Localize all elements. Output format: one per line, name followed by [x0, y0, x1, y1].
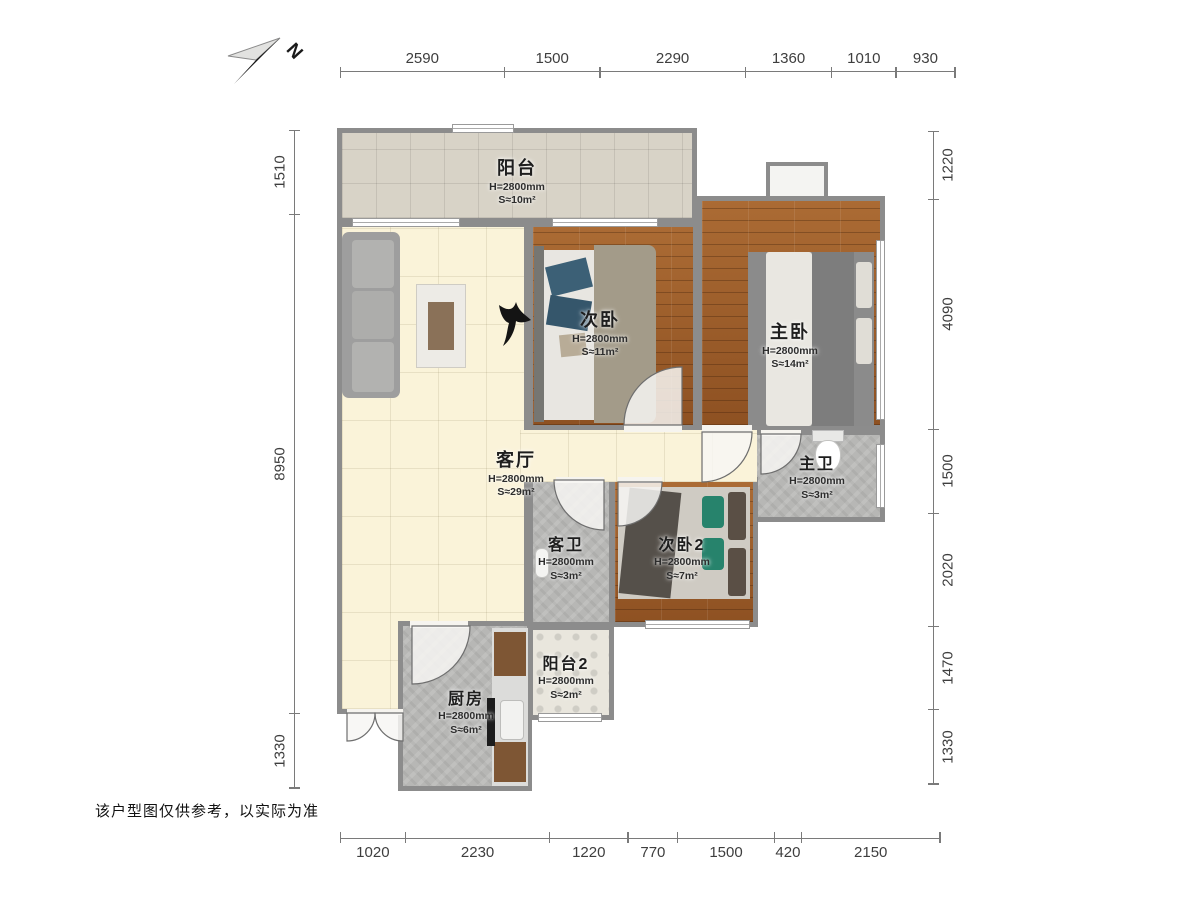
dim-segment: 1010	[832, 50, 896, 78]
label-master: 主卧 H=2800mm S≈14m²	[762, 322, 818, 371]
dim-segment: 4090	[928, 200, 956, 430]
dim-value: 1220	[572, 844, 605, 861]
plant-decor-icon	[498, 300, 532, 348]
room-name: 阳台	[489, 158, 545, 180]
dim-value: 1330	[272, 734, 289, 767]
room-area: S≈6m²	[438, 724, 494, 737]
dim-value: 2290	[656, 50, 689, 67]
dim-value: 770	[640, 844, 665, 861]
room-name: 客厅	[488, 450, 544, 472]
dim-segment: 2230	[406, 832, 550, 860]
bed3-pillow	[728, 492, 746, 540]
dim-value: 1330	[940, 730, 957, 763]
bed3-pillow	[728, 548, 746, 596]
disclaimer-text: 该户型图仅供参考，以实际为准	[95, 800, 319, 821]
dim-value: 930	[913, 50, 938, 67]
room-area: S≈3m²	[789, 489, 845, 502]
dim-value: 1360	[772, 50, 805, 67]
kitchen-sink	[500, 700, 524, 740]
window-balcony-top	[452, 124, 514, 133]
dim-value: 1500	[536, 50, 569, 67]
room-area: S≈29m²	[488, 486, 544, 499]
dim-segment: 1330	[928, 709, 956, 784]
room-area: S≈3m²	[538, 570, 594, 583]
room-height: H=2800mm	[489, 181, 545, 194]
room-area: S≈7m²	[654, 570, 710, 583]
dim-segment: 1470	[928, 627, 956, 710]
bed2-headboard	[534, 246, 544, 422]
dim-segment: 1500	[928, 429, 956, 513]
door-gap-bedroom3	[618, 477, 662, 483]
window-master-right	[876, 240, 885, 420]
room-name: 阳台2	[538, 655, 594, 674]
dim-value: 1470	[940, 651, 957, 684]
label-bedroom2: 次卧 H=2800mm S≈11m²	[572, 310, 628, 359]
room-height: H=2800mm	[488, 473, 544, 486]
bay-window	[766, 162, 828, 200]
room-height: H=2800mm	[538, 556, 594, 569]
door-gap-master	[702, 425, 752, 432]
sofa-cushion	[352, 240, 394, 288]
door-gap-guestbath	[556, 477, 604, 483]
coffee-table-top	[428, 302, 454, 350]
room-height: H=2800mm	[762, 345, 818, 358]
dim-value: 1500	[709, 844, 742, 861]
dim-value: 2150	[854, 844, 887, 861]
dim-segment: 1220	[928, 131, 956, 200]
dim-segment: 1360	[745, 50, 831, 78]
room-height: H=2800mm	[572, 333, 628, 346]
room-area: S≈10m²	[489, 194, 545, 207]
room-height: H=2800mm	[538, 675, 594, 688]
dim-value: 1010	[847, 50, 880, 67]
dim-value: 2590	[406, 50, 439, 67]
window-balcony-living	[352, 218, 460, 227]
bed3-pillow-teal	[702, 496, 724, 528]
north-label: N	[282, 39, 307, 63]
dim-value: 1020	[356, 844, 389, 861]
dim-value: 8950	[272, 447, 289, 480]
room-name: 主卧	[762, 322, 818, 344]
room-height: H=2800mm	[789, 475, 845, 488]
sofa-cushion	[352, 291, 394, 339]
dim-segment: 1500	[505, 50, 600, 78]
dim-value: 2020	[940, 553, 957, 586]
dim-segment: 2290	[600, 50, 745, 78]
kitchen-cabinet	[494, 742, 526, 782]
dimension-line-left: 151089501330	[272, 130, 300, 788]
master-bed-pillow	[856, 318, 872, 364]
dim-segment: 2590	[340, 50, 505, 78]
window-balcony2-bottom	[538, 713, 602, 722]
label-master-bath: 主卫 H=2800mm S≈3m²	[789, 455, 845, 501]
window-bedroom3-bottom	[645, 620, 750, 629]
room-name: 客卫	[538, 536, 594, 555]
dim-segment: 420	[774, 832, 801, 860]
room-area: S≈11m²	[572, 346, 628, 359]
floorplan-canvas: N 25901500229013601010930 10202230122077…	[0, 0, 1200, 900]
master-bed-pillow	[856, 262, 872, 308]
door-gap-entrance	[347, 709, 403, 715]
master-bed-blanket	[812, 252, 854, 426]
north-compass-icon: N	[218, 30, 314, 94]
dim-segment: 1330	[272, 714, 300, 788]
dim-value: 420	[775, 844, 800, 861]
label-guest-bath: 客卫 H=2800mm S≈3m²	[538, 536, 594, 582]
dim-segment: 1510	[272, 130, 300, 214]
door-entrance-left	[347, 713, 375, 741]
room-name: 厨房	[438, 690, 494, 709]
room-name: 主卫	[789, 455, 845, 474]
kitchen-cabinet	[494, 632, 526, 676]
room-height: H=2800mm	[438, 710, 494, 723]
room-area: S≈14m²	[762, 358, 818, 371]
window-masterbath-right	[876, 444, 885, 508]
dim-segment: 1220	[549, 832, 628, 860]
room-name: 次卧2	[654, 536, 710, 555]
label-balcony: 阳台 H=2800mm S≈10m²	[489, 158, 545, 207]
dim-value: 4090	[940, 298, 957, 331]
dim-segment: 8950	[272, 214, 300, 714]
dimension-line-right: 122040901500202014701330	[928, 131, 956, 784]
window-balcony-bedroom	[552, 218, 658, 227]
dim-segment: 2150	[801, 832, 940, 860]
dimension-line-bottom: 10202230122077015004202150	[340, 832, 940, 860]
door-gap-bedroom2	[624, 425, 682, 432]
door-gap-kitchen	[410, 621, 468, 628]
dim-value: 2230	[461, 844, 494, 861]
room-area: S≈2m²	[538, 689, 594, 702]
dim-value: 1500	[940, 455, 957, 488]
room-height: H=2800mm	[654, 556, 710, 569]
label-kitchen: 厨房 H=2800mm S≈6m²	[438, 690, 494, 736]
hallway	[520, 430, 757, 482]
label-living: 客厅 H=2800mm S≈29m²	[488, 450, 544, 499]
dim-value: 1220	[940, 149, 957, 182]
sofa-cushion	[352, 342, 394, 392]
dim-value: 1510	[272, 155, 289, 188]
label-bedroom3: 次卧2 H=2800mm S≈7m²	[654, 536, 710, 582]
dim-segment: 1500	[678, 832, 775, 860]
dim-segment: 930	[896, 50, 955, 78]
dimension-line-top: 25901500229013601010930	[340, 50, 955, 78]
dim-segment: 2020	[928, 513, 956, 626]
label-balcony2: 阳台2 H=2800mm S≈2m²	[538, 655, 594, 701]
dim-segment: 770	[628, 832, 678, 860]
door-gap-masterbath	[761, 430, 801, 436]
dim-segment: 1020	[340, 832, 406, 860]
room-name: 次卧	[572, 310, 628, 332]
